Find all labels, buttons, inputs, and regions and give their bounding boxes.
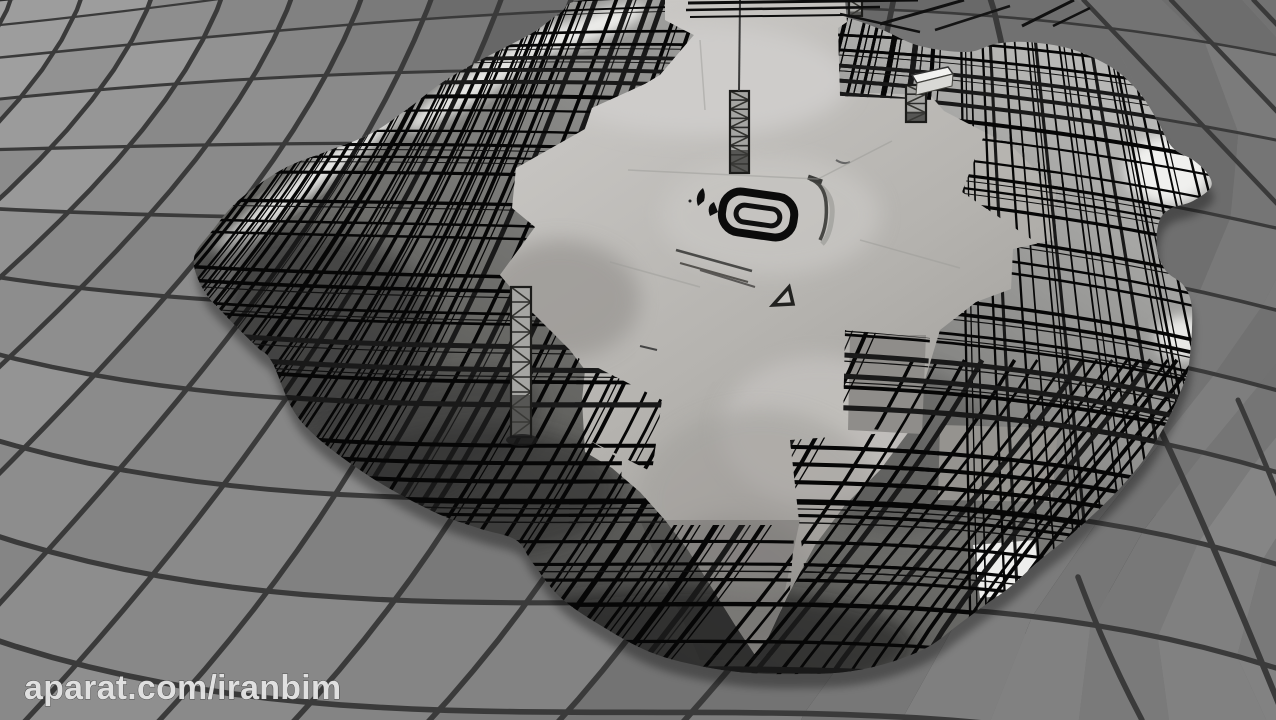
svg-text:aparat.com/iranbim: aparat.com/iranbim	[24, 669, 341, 707]
